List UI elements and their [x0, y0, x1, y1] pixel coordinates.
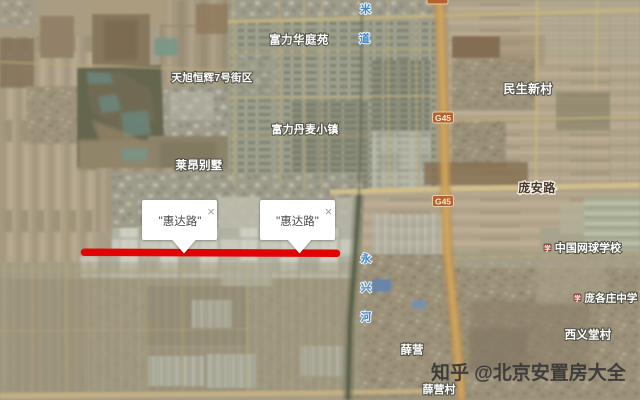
svg-text:薛营村: 薛营村 [423, 382, 456, 396]
svg-text:河: 河 [361, 312, 372, 324]
svg-text:莱昂别墅: 莱昂别墅 [175, 158, 222, 172]
svg-text:民生新村: 民生新村 [503, 81, 552, 96]
svg-text:知乎 @北京安置房大全: 知乎 @北京安置房大全 [431, 361, 627, 384]
svg-text:米: 米 [359, 3, 371, 16]
svg-text:永: 永 [360, 252, 372, 265]
svg-text:道: 道 [359, 32, 370, 45]
svg-text:"惠达路": "惠达路" [159, 214, 202, 228]
svg-text:庞各庄中学: 庞各庄中学 [585, 292, 638, 305]
svg-text:富力华庭苑: 富力华庭苑 [269, 33, 329, 47]
svg-text:×: × [207, 204, 215, 219]
svg-text:西义堂村: 西义堂村 [565, 328, 612, 342]
svg-text:学: 学 [544, 243, 551, 252]
svg-text:庞安路: 庞安路 [518, 180, 556, 195]
svg-text:富力丹麦小镇: 富力丹麦小镇 [271, 122, 338, 136]
svg-text:G45: G45 [435, 196, 451, 206]
svg-text:薛营: 薛营 [401, 343, 424, 357]
svg-text:天旭恒辉7号街区: 天旭恒辉7号街区 [172, 71, 253, 84]
svg-text:中国网球学校: 中国网球学校 [555, 241, 622, 255]
svg-text:×: × [325, 204, 333, 219]
svg-text:兴: 兴 [361, 281, 372, 294]
svg-text:学: 学 [574, 293, 581, 302]
svg-text:G45: G45 [435, 113, 451, 123]
svg-text:"惠达路": "惠达路" [276, 214, 319, 228]
